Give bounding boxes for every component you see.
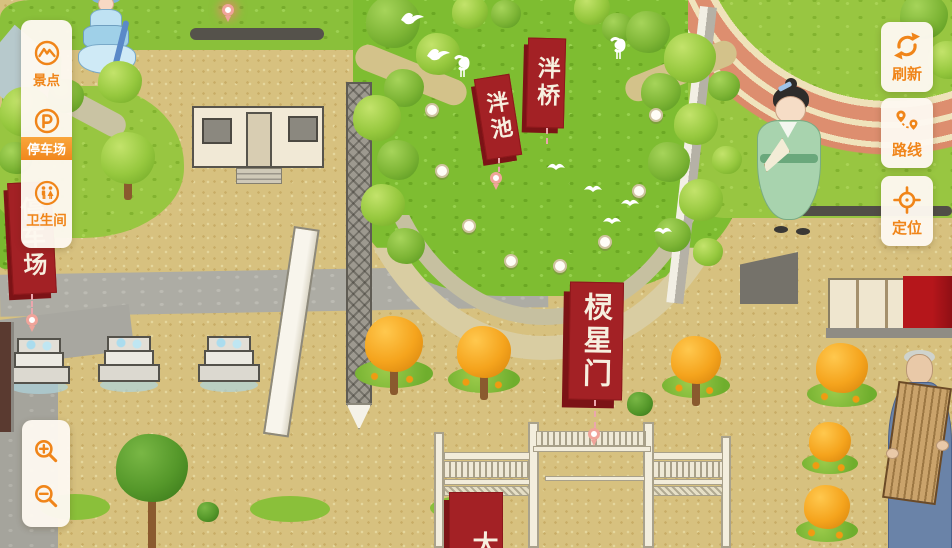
location-pin [26, 314, 38, 326]
bird-dove [619, 196, 641, 215]
route-dash [546, 128, 548, 144]
left-menu-panel: 景点 停车场 卫生间 [21, 20, 72, 248]
dark-building-edge [0, 322, 14, 432]
bird-fly [424, 44, 454, 69]
bamboo-scroll-reader [880, 352, 952, 548]
tree [197, 502, 219, 523]
bird-dove [582, 182, 604, 201]
bird-stand [452, 54, 472, 87]
temple-red-door [903, 276, 952, 330]
partial-banner[interactable]: 太 [449, 492, 503, 548]
tree [674, 103, 718, 145]
menu-item-scenic[interactable]: 景点 [21, 40, 72, 89]
tree [804, 485, 850, 529]
restroom-icon [34, 180, 60, 206]
scenic-map-app: 棂星门 泮桥 泮池 棂星门 停车场 太 景点 [0, 0, 952, 548]
gate-beam [545, 476, 645, 481]
temple-wing-roof [740, 252, 798, 304]
menu-item-parking[interactable]: 停车场 [21, 108, 72, 160]
tree [712, 146, 742, 175]
zoom-panel [22, 420, 70, 527]
menu-label-restroom: 卫生间 [26, 209, 67, 229]
side-hall-door [246, 112, 272, 168]
parking-icon [34, 108, 60, 134]
tiled-wall-cap [346, 403, 372, 430]
gate-balustrade [444, 461, 530, 478]
side-hall-ridge [190, 28, 324, 40]
route-button[interactable]: 路线 [881, 98, 933, 168]
tree [809, 422, 851, 462]
pond-rim-pillar [425, 103, 439, 117]
pond-rim-pillar [632, 184, 646, 198]
pond-rim-pillar [504, 254, 518, 268]
bird-stand [608, 36, 628, 69]
gate-lattice [653, 486, 723, 496]
pond-rim-pillar [435, 164, 449, 178]
refresh-button[interactable]: 刷新 [881, 22, 933, 92]
gate-beam [653, 479, 723, 485]
gate-pillar [434, 432, 444, 548]
scenic-spot-icon [34, 40, 60, 66]
grass-bump [250, 496, 330, 522]
route-icon [892, 107, 922, 137]
refresh-label: 刷新 [892, 63, 922, 84]
route-label: 路线 [892, 139, 922, 160]
route-dash [594, 400, 596, 428]
white-wall [263, 226, 320, 438]
tree [641, 73, 681, 111]
tree [491, 0, 521, 28]
pan-bridge-banner[interactable]: 泮桥 [526, 38, 566, 129]
tree [361, 184, 405, 226]
bird-dove [652, 224, 674, 243]
location-pin [222, 4, 234, 16]
pond-rim-pillar [462, 219, 476, 233]
gate-beam [444, 452, 530, 460]
gate-beam [444, 479, 530, 485]
tree [816, 343, 868, 392]
pond-rim-pillar [553, 259, 567, 273]
route-dash [498, 158, 500, 172]
locate-icon [892, 185, 922, 215]
pond-rim-pillar [598, 235, 612, 249]
zoom-in-icon[interactable] [32, 437, 60, 465]
locate-button[interactable]: 定位 [881, 176, 933, 246]
locate-label: 定位 [892, 217, 922, 238]
tree [365, 316, 423, 371]
tree [457, 326, 511, 377]
tree [626, 11, 670, 53]
bird-dove [601, 214, 623, 233]
menu-label-scenic: 景点 [33, 69, 60, 89]
stone-monument [98, 334, 160, 394]
tree [627, 392, 653, 417]
side-hall-steps [236, 168, 282, 184]
tree [648, 142, 690, 182]
tree [101, 132, 155, 183]
tree [671, 336, 721, 384]
tree [679, 179, 723, 221]
location-pin [588, 428, 600, 440]
refresh-icon [892, 31, 922, 61]
side-hall-window [202, 118, 232, 144]
tree [353, 95, 401, 141]
side-hall-window [288, 116, 318, 142]
gate-balustrade [653, 461, 723, 478]
tree [98, 61, 142, 103]
menu-label-parking: 停车场 [21, 137, 72, 160]
tree [387, 228, 425, 264]
zoom-out-icon[interactable] [32, 482, 60, 510]
location-pin [490, 172, 502, 184]
route-dash [31, 294, 33, 314]
stone-monument [8, 336, 70, 396]
scholar-figure [752, 82, 838, 238]
stone-monument [198, 334, 260, 394]
bird-fly [398, 8, 428, 33]
tree [693, 238, 723, 267]
bird-dove [545, 160, 567, 179]
tree [116, 434, 188, 502]
tree [708, 71, 740, 101]
lingxing-gate-banner[interactable]: 棂星门 [568, 282, 624, 401]
menu-item-restroom[interactable]: 卫生间 [21, 180, 72, 229]
temple-ledge [826, 328, 952, 338]
gate-beam [653, 452, 723, 460]
tree [377, 140, 419, 180]
